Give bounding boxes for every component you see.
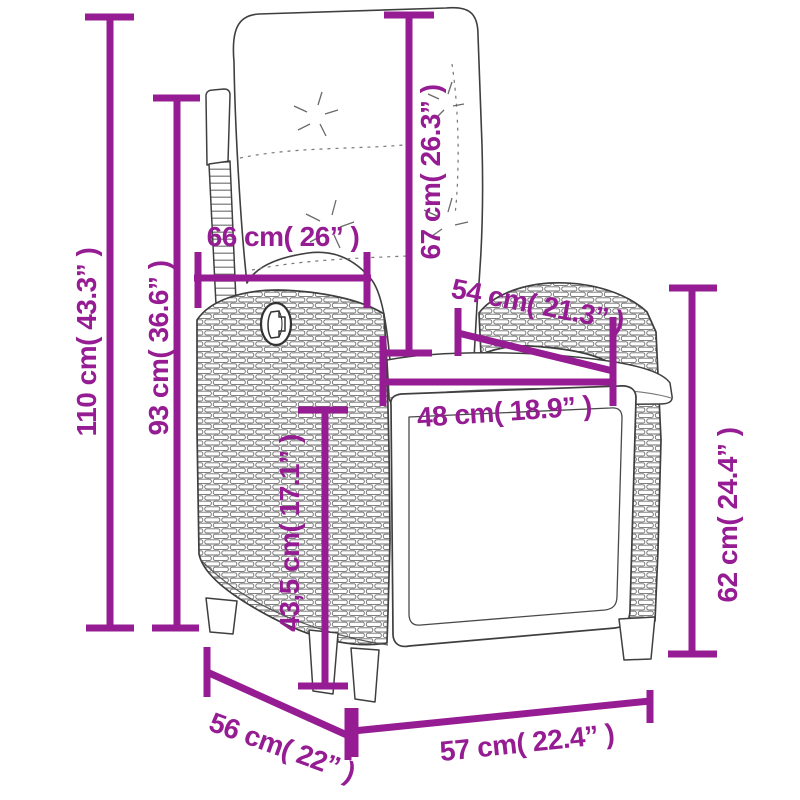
dim-total-height-label: 110 cm( 43.3” ) [71, 248, 102, 437]
dim-backrest-length-label: 67 cm( 26.3” ) [415, 84, 446, 259]
dim-armrest-height-line [668, 288, 717, 654]
dim-depth-label: 56 cm( 22” ) [205, 706, 359, 787]
footrest-leg [351, 648, 379, 702]
dim-armrest-height-label: 62 cm( 24.4” ) [712, 427, 743, 602]
dim-seat-height-label: 43,5 cm( 17.1” ) [274, 434, 305, 631]
front-right-leg [619, 617, 655, 660]
dim-back-height-label: 93 cm( 36.6” ) [143, 260, 174, 435]
rear-left-leg [206, 598, 237, 634]
dim-width-label: 57 cm( 22.4” ) [438, 718, 615, 767]
back-frame [206, 89, 236, 305]
diagram-canvas: 110 cm( 43.3” ) 93 cm( 36.6” ) 66 cm( 26… [0, 0, 800, 800]
chair-dimension-diagram: 110 cm( 43.3” ) 93 cm( 36.6” ) 66 cm( 26… [0, 0, 800, 800]
dim-back-width-label: 66 cm( 26” ) [207, 221, 360, 252]
